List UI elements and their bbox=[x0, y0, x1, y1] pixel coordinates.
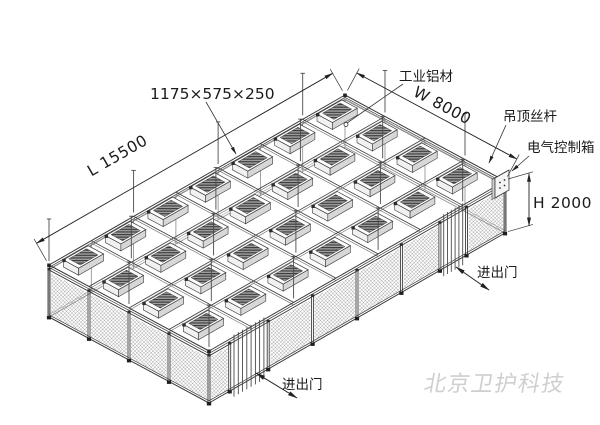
dim-height-label: H 2000 bbox=[533, 194, 592, 212]
watermark: 北京卫护科技 bbox=[422, 371, 567, 397]
isometric-cad-drawing: L 15500 W 8000 H 2000 1175×575×250 工业铝材 … bbox=[0, 0, 600, 425]
cad-drawing-page: L 15500 W 8000 H 2000 1175×575×250 工业铝材 … bbox=[0, 0, 600, 425]
dim-width-label: W 8000 bbox=[410, 83, 474, 128]
material-label: 工业铝材 bbox=[399, 69, 453, 85]
door-label-right: 进出门 bbox=[477, 265, 518, 281]
door-label-bottom: 进出门 bbox=[282, 377, 323, 393]
dim-length-label: L 15500 bbox=[84, 131, 150, 180]
ffu-units bbox=[62, 100, 477, 340]
control-box-label: 电气控制箱 bbox=[527, 140, 595, 156]
electrical-control-box bbox=[492, 170, 509, 200]
ffu-size-label: 1175×575×250 bbox=[150, 85, 275, 103]
ceiling-rod-label: 吊顶丝杆 bbox=[503, 109, 557, 125]
